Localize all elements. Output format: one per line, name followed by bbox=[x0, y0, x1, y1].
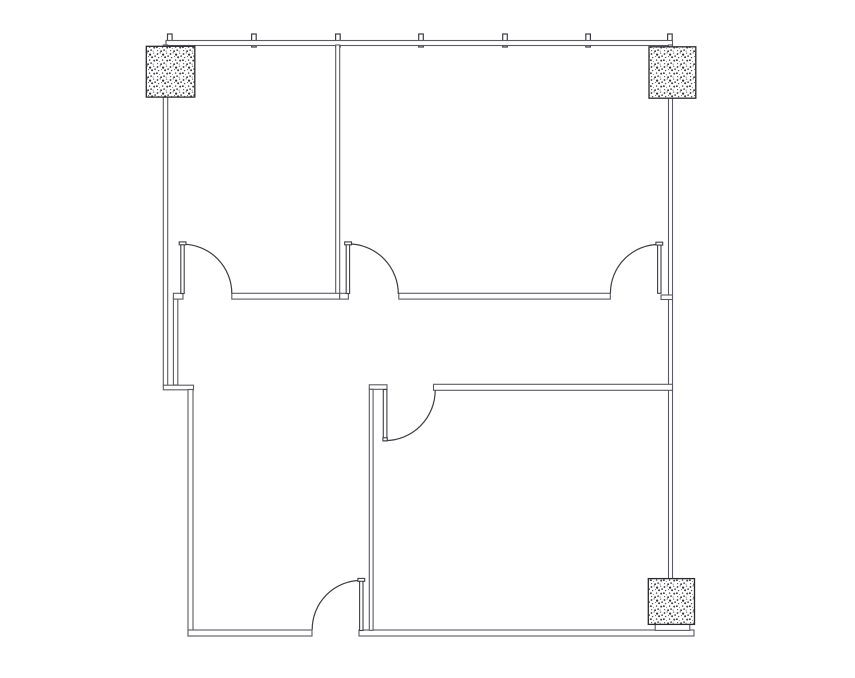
door-leaf-4 bbox=[383, 390, 387, 441]
door-leaf-cap-4 bbox=[383, 438, 387, 441]
wall-corridor-north-stub-east bbox=[661, 295, 673, 300]
wall-bottom-exterior-east bbox=[359, 630, 694, 636]
wall-corridor-north-a bbox=[232, 293, 340, 299]
doors-layer bbox=[179, 242, 663, 631]
door-leaf-cap-2 bbox=[345, 242, 352, 245]
floor-plan bbox=[0, 0, 855, 678]
floor-plan-svg bbox=[0, 0, 855, 678]
door-leaf-5 bbox=[360, 580, 363, 631]
walls-layer bbox=[163, 41, 694, 637]
door-leaf-2 bbox=[346, 244, 349, 294]
door-swing-arc-2 bbox=[348, 244, 398, 294]
door-swing-arc-3 bbox=[610, 244, 659, 293]
door-swing-arc-4 bbox=[385, 390, 435, 440]
column-southeast bbox=[648, 579, 694, 625]
door-swing-arc-5 bbox=[312, 580, 361, 629]
door-leaf-1 bbox=[181, 244, 184, 294]
column-northeast bbox=[649, 47, 696, 98]
wall-left-exterior-lower bbox=[188, 390, 193, 637]
wall-corridor-north-stub-west bbox=[173, 293, 183, 299]
door-leaf-cap-5 bbox=[358, 578, 365, 581]
wall-right-exterior bbox=[669, 45, 673, 579]
wall-partition-bottom-rooms bbox=[369, 389, 373, 630]
wall-top-exterior bbox=[166, 41, 673, 46]
wall-bottom-exterior-west bbox=[188, 630, 312, 636]
door-leaf-3 bbox=[658, 244, 661, 293]
wall-room-se-north bbox=[434, 384, 673, 390]
wall-corridor-west-inner bbox=[173, 298, 177, 386]
wall-partition-top-rooms bbox=[336, 45, 340, 299]
wall-corridor-north-b bbox=[340, 293, 349, 299]
door-leaf-cap-3 bbox=[656, 242, 663, 245]
wall-door4-hinge-cap bbox=[369, 385, 387, 390]
door-swing-arc-1 bbox=[183, 244, 232, 293]
wall-corridor-north-c bbox=[399, 293, 611, 299]
door-leaf-cap-1 bbox=[179, 242, 186, 245]
columns-layer bbox=[146, 46, 696, 624]
column-northwest bbox=[146, 46, 195, 97]
wall-column-base-sliver bbox=[655, 624, 690, 630]
